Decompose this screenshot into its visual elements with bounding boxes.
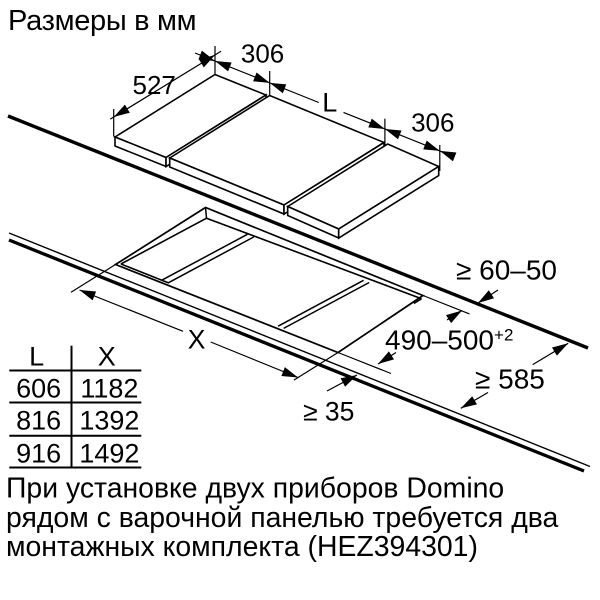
svg-text:X: X (188, 325, 206, 355)
svg-text:При установке двух приборов Do: При установке двух приборов Domino (6, 473, 504, 505)
svg-text:1182: 1182 (80, 374, 138, 404)
svg-text:X: X (98, 342, 116, 372)
svg-text:Размеры в мм: Размеры в мм (8, 5, 196, 37)
svg-text:306: 306 (241, 39, 284, 69)
svg-text:L: L (29, 342, 44, 372)
svg-text:монтажных комплекта (HEZ394301: монтажных комплекта (HEZ394301) (6, 531, 478, 563)
svg-text:≥ 60–50: ≥ 60–50 (456, 255, 557, 286)
svg-text:816: 816 (16, 406, 61, 436)
svg-text:L: L (322, 88, 337, 118)
svg-text:306: 306 (411, 107, 454, 137)
svg-text:606: 606 (16, 374, 61, 404)
svg-text:1392: 1392 (79, 406, 139, 436)
svg-text:≥ 35: ≥ 35 (303, 396, 354, 426)
svg-text:1492: 1492 (79, 439, 139, 469)
svg-text:527: 527 (133, 70, 176, 100)
svg-text:рядом с варочной панелью требу: рядом с варочной панелью требуется два (6, 502, 559, 534)
svg-text:≥ 585: ≥ 585 (475, 364, 545, 395)
svg-text:916: 916 (16, 439, 61, 469)
